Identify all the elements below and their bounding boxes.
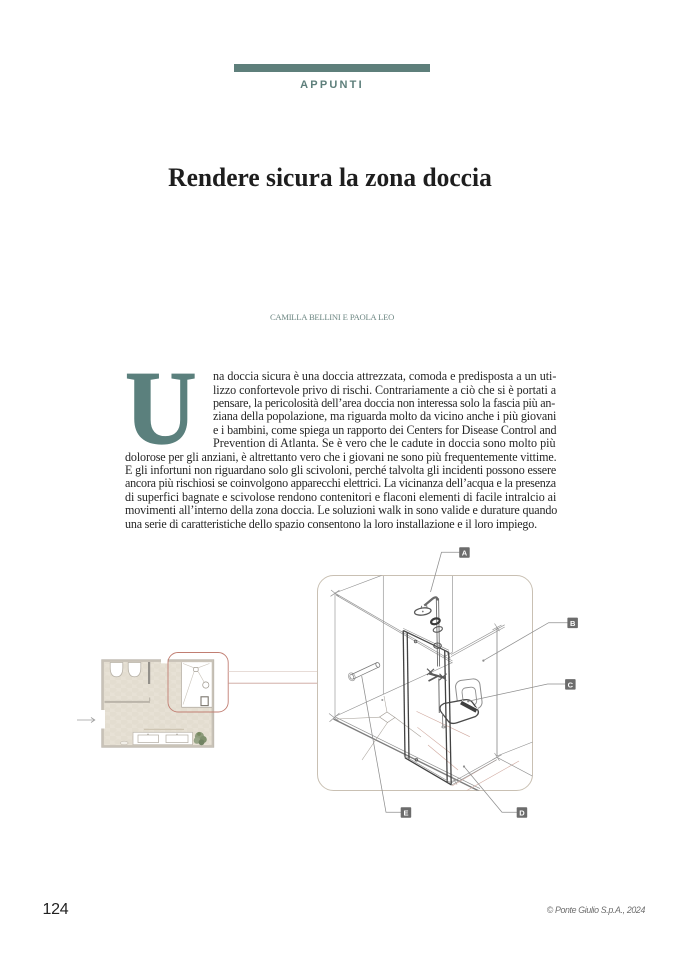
svg-text:D: D xyxy=(519,809,525,818)
svg-text:B: B xyxy=(570,619,576,628)
svg-text:A: A xyxy=(462,549,468,558)
svg-text:E: E xyxy=(403,809,408,818)
svg-text:C: C xyxy=(568,681,574,690)
